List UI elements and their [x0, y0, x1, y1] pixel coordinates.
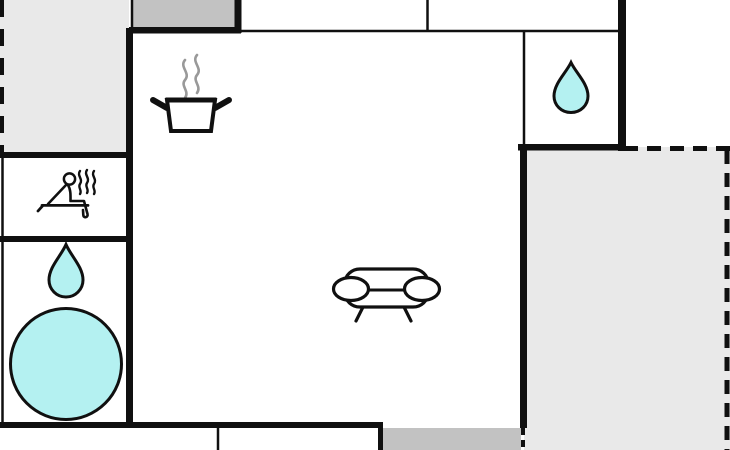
balcony-bottom	[383, 428, 521, 450]
wall-balcony-bottom-left	[378, 422, 383, 450]
terrace-right	[524, 147, 730, 450]
round-tub-icon	[11, 309, 122, 420]
wall-bottom	[0, 422, 383, 428]
wall-under-balcony-top	[129, 27, 241, 34]
terrace-top-left	[0, 0, 129, 155]
wall-main-right	[520, 144, 527, 428]
wall-balcony-top-right	[235, 0, 242, 33]
floor-plan-drawing	[0, 0, 730, 450]
wall-main-left	[126, 28, 133, 428]
sauna-person-head	[64, 173, 75, 184]
wall-shower-right	[618, 0, 626, 151]
pot-body	[167, 100, 215, 131]
sofa-armrest-left	[334, 278, 369, 301]
wall-terrace-sauna	[0, 152, 133, 158]
balcony-top	[133, 0, 236, 30]
floor-plan	[0, 0, 730, 450]
wall-sauna-bathroom	[0, 236, 133, 242]
sofa-armrest-right	[405, 278, 440, 301]
wall-shower-bottom	[518, 144, 626, 151]
